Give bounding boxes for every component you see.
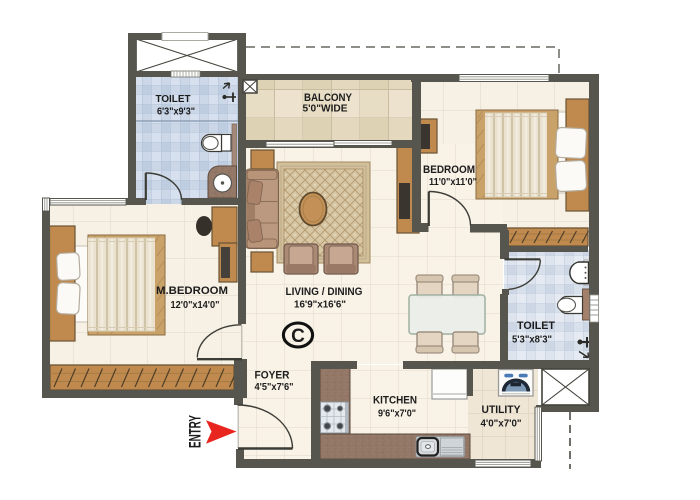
svg-text:9'6"x7'0": 9'6"x7'0" xyxy=(378,409,416,420)
svg-text:TOILET: TOILET xyxy=(517,320,555,332)
svg-text:M.BEDROOM: M.BEDROOM xyxy=(156,285,228,297)
svg-text:KITCHEN: KITCHEN xyxy=(373,395,417,407)
svg-text:C: C xyxy=(291,326,305,347)
svg-text:5'0"WIDE: 5'0"WIDE xyxy=(303,104,348,115)
svg-text:16'9"x16'6": 16'9"x16'6" xyxy=(294,300,346,311)
svg-text:FOYER: FOYER xyxy=(255,370,290,382)
svg-text:5'3"x8'3": 5'3"x8'3" xyxy=(512,335,552,346)
svg-text:4'5"x7'6": 4'5"x7'6" xyxy=(255,382,294,393)
svg-text:TOILET: TOILET xyxy=(156,93,192,105)
svg-text:BEDROOM: BEDROOM xyxy=(423,164,475,176)
svg-text:LIVING / DINING: LIVING / DINING xyxy=(286,286,363,298)
svg-text:ENTRY: ENTRY xyxy=(186,415,205,448)
svg-text:11'0"x11'0": 11'0"x11'0" xyxy=(429,177,477,188)
svg-text:BALCONY: BALCONY xyxy=(304,92,353,104)
svg-text:UTILITY: UTILITY xyxy=(482,404,522,416)
svg-text:12'0"x14'0": 12'0"x14'0" xyxy=(171,300,220,311)
svg-text:6'3"x9'3": 6'3"x9'3" xyxy=(157,107,195,118)
svg-text:4'0"x7'0": 4'0"x7'0" xyxy=(481,419,522,430)
